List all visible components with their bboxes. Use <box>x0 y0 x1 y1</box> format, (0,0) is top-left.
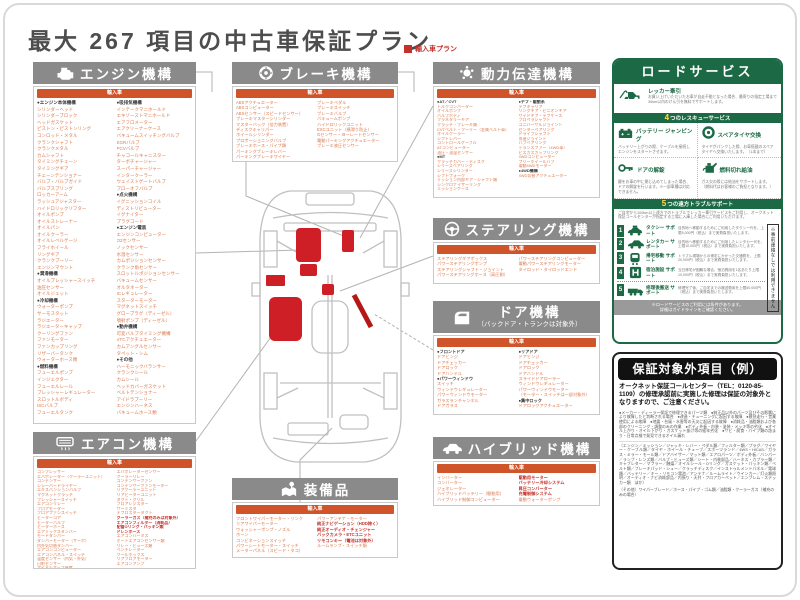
part-item: オイルプレッシャースイッチ <box>37 278 113 285</box>
oil-can-icon <box>702 161 717 179</box>
tow-service-row: レッカー牽引 お買い上げいただいたお車が自走不能となった場合、最寄りの指定工場ま… <box>614 84 781 113</box>
part-item: ヘッドガスケット <box>37 120 113 127</box>
section-powertrain-header: 動力伝達機構 <box>433 62 600 84</box>
part-item: ウェイストゲートバルブ <box>117 179 193 186</box>
rescue-count: 4 <box>665 113 669 122</box>
part-item: サーモスタット <box>37 311 113 318</box>
part-item: オイルレベルゲージ <box>37 238 113 245</box>
part-item: ●動弁機構 <box>117 324 193 331</box>
part-item: インジェクター <box>37 377 113 384</box>
part-item: エンジンコンピューター <box>117 232 193 239</box>
part-item: パーキングブレーキワイヤー <box>236 154 313 159</box>
part-item: リングギア <box>37 252 113 259</box>
part-item: メーターパネル（スピード・タコ） <box>236 548 313 553</box>
part-item: ●点火機構 <box>117 192 193 199</box>
legend-label: 輸入車プラン <box>415 44 457 54</box>
row-desc: 目的地へ移動するためにご利用したレンタカー代を、上限10,000円（税込）まで実… <box>678 240 765 249</box>
part-item: ノックセンサー <box>117 245 193 252</box>
brake-highlight <box>342 230 354 252</box>
rescue-door-unlock: ドアの解錠 鍵をお車の中に閉じ込めてしまった場合、ドアの解錠を行います。※一部車… <box>614 158 698 198</box>
hotel-icon <box>626 266 644 279</box>
rescue-label: バッテリー ジャンピング <box>636 127 693 143</box>
part-item: （モーター・スイッチは一部対象外） <box>519 392 597 397</box>
section-powertrain: 動力伝達機構 輸入車 ●AT／CVTトルクコンバーターオイルポンプバルブボディプ… <box>433 62 600 198</box>
part-item: ファンモーター <box>37 337 113 344</box>
part-item: フューエルレール <box>37 384 113 391</box>
part-item: ウォーターホース類 <box>37 357 113 364</box>
part-item: フライホイール <box>37 245 113 252</box>
section-title: エンジン機構 <box>80 63 173 83</box>
part-item: タイロッド・タイロッドエンド <box>519 267 597 272</box>
import-car-tag: 輸入車 <box>437 89 596 98</box>
part-item: チャコールキャニスター <box>117 153 193 160</box>
row-desc: 修理完了後、ご自宅までの搬送費用を上限50,000円（税込）まで実費負担いたしま… <box>678 286 765 295</box>
engine-icon <box>56 65 74 81</box>
part-item: 水温センサー <box>117 252 193 259</box>
door-icon <box>452 308 472 326</box>
part-item: ハイブリッド制御コンピューター <box>437 497 515 502</box>
part-item: ファンカップリング <box>37 344 113 351</box>
carrier-truck-icon <box>626 285 644 296</box>
part-item: クランク角センサー <box>117 265 193 272</box>
trouble-support-bar: 5つの遠方トラブルサポート <box>614 199 781 209</box>
tow-label: レッカー牽引 <box>648 87 777 95</box>
import-car-tag: 輸入車 <box>437 338 596 347</box>
rescue-grid: バッテリー ジャンピング バッテリー上がりの際、ケーブルを接続しエンジンをスター… <box>614 123 781 199</box>
exclusions-fine-print: （エンジン／ミッション／ジャッキ・レバー・ペダル類／フィルター類／プラグ／ワイヤ… <box>619 441 776 486</box>
row-desc: 目的地へ移動するためにご利用したタクシー代を、上限5,000円（税込）まで実費負… <box>678 226 765 235</box>
part-item: シリンダーヘッド <box>37 107 113 114</box>
part-item: スターターモーター <box>117 298 193 305</box>
part-item: ブローオフバルブ <box>117 186 193 193</box>
car-icon <box>442 441 462 455</box>
part-item: ヘッドカバーガスケット <box>117 384 193 391</box>
steering-highlight <box>322 284 334 295</box>
footer-line: 詳細はガイドラインをご確認ください。 <box>617 307 778 312</box>
row-label: タクシー サポート <box>646 225 676 236</box>
part-item: バキュームセンサー <box>117 278 193 285</box>
part-item: リザーバータンク <box>37 351 113 358</box>
rescue-desc: 鍵をお車の中に閉じ込めてしまった場合、ドアの解錠を行います。※一部車種は対応でき… <box>618 180 693 194</box>
section-ac: エアコン機構 輸入車 コンプレッサーエバポレーター（クーラーユニット）コンデンサ… <box>33 432 196 569</box>
part-item: コンロッド・メタル <box>37 133 113 140</box>
part-item: バルブスプリング <box>37 186 113 193</box>
part-item: エアクリーナーケース <box>117 126 193 133</box>
row-label: 修理後搬送 サポート <box>646 285 676 296</box>
map-pin-icon <box>280 481 298 498</box>
section-steering-header: ステアリング機構 <box>433 218 600 240</box>
part-item: カムポジションセンサー <box>117 258 193 265</box>
tow-truck-icon <box>618 87 644 110</box>
section-title: 装備品 <box>304 479 351 499</box>
part-item: イグナイター <box>117 212 193 219</box>
part-item: フューエルポンプ <box>37 370 113 377</box>
support-row-transit: 3 帰宅移動 サポート トラブル現場からの帰宅にかかった交通費を、上限20,00… <box>617 252 765 265</box>
part-item: ●冷却機構 <box>37 298 113 305</box>
part-item: ハイドロリックリフター <box>37 206 113 213</box>
section-title: 動力伝達機構 <box>481 63 574 83</box>
part-item: アイドルアップ装置 <box>37 566 113 569</box>
car-diagram <box>228 183 433 478</box>
part-item: ブレーキ液圧センサー <box>317 143 394 148</box>
part-item: ラッシュアジャスター <box>37 199 113 206</box>
import-car-tag: 輸入車 <box>236 89 394 98</box>
section-engine-header: エンジン機構 <box>33 62 196 84</box>
part-item: ドアロックアクチュエーター <box>519 403 597 408</box>
part-item: クランクメタル <box>37 146 113 153</box>
support-intro: ご自宅から100km以上遠方でのトラブルでレッカー牽引サービスをご利用し、オーク… <box>614 209 781 222</box>
part-item: スーパーチャージャー <box>117 166 193 173</box>
part-item: オイルジェット <box>37 291 113 298</box>
taxi-icon <box>626 225 644 236</box>
row-number: 3 <box>617 252 624 264</box>
part-item: クランクプーリー <box>37 258 113 265</box>
part-item: マグネットスイッチ <box>117 304 193 311</box>
rescue-bar-label: つのレスキューサービス <box>670 116 730 122</box>
key-icon <box>618 161 634 179</box>
part-item: ミッションケース <box>437 187 515 192</box>
rescue-services-bar: 4つのレスキューサービス <box>614 113 781 123</box>
rescue-fuel: 燃料切れ給油 ガス欠の際には給油をサポートします。（燃料代はお客様のご負担となり… <box>698 158 782 198</box>
rescue-spare-tire: スペアタイヤ交換 タイヤがパンクした際、お車搭載のスペアタイヤへ交換いたします。… <box>698 123 782 158</box>
part-item: PCVバルブ <box>117 146 193 153</box>
section-hybrid: ハイブリッド機構 輸入車 インバーターコンバータージェネレーターハイブリッドバッ… <box>433 437 600 506</box>
part-item: ハイブリッドバッテリー（駆動用） <box>437 491 515 496</box>
part-item: バキュームホース類 <box>117 410 193 417</box>
tire-icon <box>702 126 715 144</box>
part-item: ラジエーター <box>37 318 113 325</box>
road-service-panel: ロードサービス レッカー牽引 お買い上げいただいたお車が自走不能となった場合、最… <box>612 58 783 344</box>
ac-vent-icon <box>55 435 75 451</box>
part-item: シリンダーブロック <box>37 113 113 120</box>
support-count: 5 <box>662 199 666 208</box>
row-number: 5 <box>617 284 624 296</box>
exclusions-panel: 保証対象外項目（例） オークネット保証コールセンター（TEL：0120-85-1… <box>612 352 783 570</box>
ac-compressor-highlight <box>266 275 285 286</box>
brake-disc-icon <box>258 65 274 81</box>
tank-highlight <box>269 297 302 341</box>
part-item: アイドラプーリー <box>117 397 193 404</box>
part-item: オルタネーター <box>117 285 193 292</box>
section-title: エアコン機構 <box>81 433 174 453</box>
section-door-header: ドア機構 （バックドア・トランクは対象外） <box>433 301 600 333</box>
import-car-tag: 輸入車 <box>437 464 596 473</box>
dotted-divider <box>617 281 765 282</box>
import-car-tag: 輸入車 <box>236 505 394 514</box>
part-item: タイミングチェーン <box>37 159 113 166</box>
part-item: 可変バルブタイミング機構 <box>117 331 193 338</box>
section-title: ブレーキ機構 <box>280 63 373 83</box>
part-item: ●その他 <box>117 357 193 364</box>
part-item: 電動ウォーターポンプ <box>519 497 597 502</box>
steering-wheel-icon <box>444 221 460 237</box>
exclusions-title: 保証対象外項目（例） <box>618 358 777 380</box>
section-ac-header: エアコン機構 <box>33 432 196 454</box>
part-item: エキゾーストマニホールド <box>117 113 193 120</box>
warranty-plan-flyer: 最大 267 項目の中古車保証プラン 輸入車プラン <box>0 0 800 600</box>
rescue-label: 燃料切れ給油 <box>720 166 753 174</box>
engine-highlight <box>296 228 321 262</box>
tow-desc: お買い上げいただいたお車が自走不能となった場合、最寄りの指定工場まで30km以内… <box>648 95 777 104</box>
row-number: 4 <box>617 267 624 279</box>
part-item: 噴射ポンプ（ディーゼル） <box>117 318 193 325</box>
part-item: カムシール <box>117 377 193 384</box>
part-item: エアコンアンプ <box>117 562 193 567</box>
row-number: 2 <box>617 238 624 250</box>
part-item: ICレギュレーター <box>117 291 193 298</box>
rescue-label: ドアの解錠 <box>637 166 665 174</box>
support-row-hotel: 4 宿泊施設 サポート 当日帰宅が困難な場合、宿泊費用を1名あたり上限10,00… <box>617 266 765 279</box>
part-item: ラジエーターキャップ <box>37 324 113 331</box>
import-plan-legend: 輸入車プラン <box>404 44 457 54</box>
part-item: 油圧センサー <box>37 285 113 292</box>
part-item: バルブ・バルブガイド <box>37 179 113 186</box>
part-item: ●エンジン本体機構 <box>37 100 113 107</box>
red-square-icon <box>404 45 412 53</box>
row-label: 宿泊施設 サポート <box>646 267 676 278</box>
part-item: ●燃料機構 <box>37 364 113 371</box>
section-equipment-header: 装備品 <box>232 478 398 500</box>
part-item: エンジンハーネス <box>117 403 193 410</box>
part-item: ベルトテンショナー <box>117 390 193 397</box>
rescue-label: スペアタイヤ交換 <box>718 131 761 139</box>
part-item: カムシャフト <box>37 153 113 160</box>
page-title: 最大 267 項目の中古車保証プラン <box>28 22 432 56</box>
rescue-desc: タイヤがパンクした際、お車搭載のスペアタイヤへ交換いたします。（1本まで） <box>702 145 778 154</box>
support-row-rental: 2 レンタカー サポート 目的地へ移動するためにご利用したレンタカー代を、上限1… <box>617 238 765 250</box>
part-item: EGRバルブ <box>117 140 193 147</box>
covered-parts-highlight <box>266 228 371 341</box>
part-item: バキュームスイッチングバルブ <box>117 133 193 140</box>
road-service-title: ロードサービス <box>614 60 781 84</box>
road-service-footer: ※ロードサービスのご利用には条件があります。 詳細はガイドラインをご確認ください… <box>614 300 781 315</box>
rescue-battery: バッテリー ジャンピング バッテリー上がりの際、ケーブルを接続しエンジンをスター… <box>614 123 698 158</box>
part-item: ●吸排気機構 <box>117 100 193 107</box>
part-item: 4WD切替アクチュエーター <box>519 174 597 179</box>
support-rows: 1 タクシー サポート 目的地へ移動するためにご利用したタクシー代を、上限5,0… <box>614 222 781 299</box>
support-row-carrier: 5 修理後搬送 サポート 修理完了後、ご自宅までの搬送費用を上限50,000円（… <box>617 284 765 296</box>
part-item: グロープラグ（ディーゼル） <box>117 311 193 318</box>
rental-car-icon <box>626 239 644 249</box>
support-bar-label: つの遠方トラブルサポート <box>667 202 733 208</box>
part-item: VTCアクチュエーター <box>117 337 193 344</box>
import-car-tag: 輸入車 <box>437 245 596 254</box>
battery-icon <box>618 126 633 144</box>
gear-icon <box>459 65 475 81</box>
part-item: オイルポンプ <box>37 212 113 219</box>
part-item: タイミングギア <box>37 166 113 173</box>
part-item: クランクシール <box>117 370 193 377</box>
part-item: ハーモニックバランサー <box>117 364 193 371</box>
support-row-taxi: 1 タクシー サポート 目的地へ移動するためにご利用したタクシー代を、上限5,0… <box>617 225 765 237</box>
part-item: パワーステアリングホース（高圧側） <box>437 272 515 277</box>
import-car-tag: 輸入車 <box>37 89 192 98</box>
section-equipment: 装備品 輸入車 フロントワイパーモーター・リンクリアワイパーモーターウォッシャー… <box>232 478 398 558</box>
import-car-tag: 輸入車 <box>37 459 192 468</box>
part-item: クランクシャフト <box>37 140 113 147</box>
row-desc: 当日帰宅が困難な場合、宿泊費用を1名あたり上限10,000円（税込）まで実費負担… <box>678 268 765 277</box>
part-item: スロットルポジションセンサー <box>117 271 193 278</box>
part-item: ルームランプ・スイッチ類 <box>317 543 394 548</box>
part-item: チェーンテンショナー <box>37 173 113 180</box>
transmission-highlight <box>300 264 317 276</box>
part-item: エアフロメーター <box>117 120 193 127</box>
part-item: オイルパン <box>37 225 113 232</box>
part-item: オイルクーラー <box>37 232 113 239</box>
section-brake-header: ブレーキ機構 <box>232 62 398 84</box>
part-item: インテークマニホールド <box>117 107 193 114</box>
part-item: タペット・シム <box>117 351 193 358</box>
section-door: ドア機構 （バックドア・トランクは対象外） 輸入車 ●フロントドアドアヒンジドア… <box>433 301 600 415</box>
section-subtitle: （バックドア・トランクは対象外） <box>478 321 582 328</box>
part-item: ●潤滑機構 <box>37 271 113 278</box>
part-item: ロッカーアーム <box>37 192 113 199</box>
rescue-desc: ガス欠の際には給油をサポートします。（燃料代はお客様のご負担となります。） <box>702 180 778 189</box>
part-item: カムアングルセンサー <box>117 344 193 351</box>
support-side-note: ※事前連絡なしでは利用できません <box>767 224 779 312</box>
part-item: ターボチャージャー <box>117 159 193 166</box>
part-item: ●エンジン電装 <box>117 225 193 232</box>
exclusions-bullets: ●メーカー・ディーラー保証で修理できるパーツ類 ●純正品以外のパーツ及びその影響… <box>619 411 776 439</box>
part-item: イグニッションコイル <box>117 199 193 206</box>
row-number: 1 <box>617 225 624 237</box>
section-hybrid-header: ハイブリッド機構 <box>433 437 600 459</box>
section-title: ステアリング機構 <box>466 219 590 239</box>
part-item: ウォーターポンプ <box>37 304 113 311</box>
part-item: エンジンマウント <box>37 265 113 272</box>
section-brake: ブレーキ機構 輸入車 ABSアクチュエーターABSコンピューターABSセンサー（… <box>232 62 398 162</box>
part-item: ディストリビューター <box>117 206 193 213</box>
part-item: ピストン・ピストンリング <box>37 126 113 133</box>
door-highlight <box>354 295 371 327</box>
row-desc: トラブル現場からの帰宅にかかった交通費を、上限20,000円（税込）まで実費負担… <box>678 254 765 263</box>
section-title: ハイブリッド機構 <box>468 438 592 458</box>
exclusions-intro: オークネット保証コールセンター（TEL：0120-85-1109）の修理承認前に… <box>619 383 776 408</box>
part-item: プラグコード <box>117 219 193 226</box>
section-title: ドア機構 <box>499 306 561 321</box>
row-label: 帰宅移動 サポート <box>646 253 676 264</box>
part-item: オイルストレーナー <box>37 219 113 226</box>
part-item: フューエルタンク <box>37 410 113 417</box>
rescue-desc: バッテリー上がりの際、ケーブルを接続しエンジンをスタートさせます。 <box>618 145 693 154</box>
section-steering: ステアリング機構 輸入車 ステアリングギアボックスパワーステアリングポンプステア… <box>433 218 600 284</box>
part-item: O2センサー <box>117 238 193 245</box>
section-engine: エンジン機構 輸入車 ●エンジン本体機構シリンダーヘッドシリンダーブロックヘッド… <box>33 62 196 424</box>
part-item: クーリングファン <box>37 331 113 338</box>
part-item: ISCバルブ <box>37 403 113 410</box>
part-item: インタークーラー <box>117 173 193 180</box>
exclusions-last-line: （その他）ワイパーブレード／ホース・パイプ・ゴム類／油脂類・クーラーガス（補充の… <box>619 488 776 497</box>
part-item: ドアガラス <box>437 403 515 408</box>
part-item: プレッシャーレギュレーター <box>37 390 113 397</box>
row-label: レンタカー サポート <box>646 239 676 250</box>
train-icon <box>626 252 644 265</box>
part-item: スロットルボディ <box>37 397 113 404</box>
